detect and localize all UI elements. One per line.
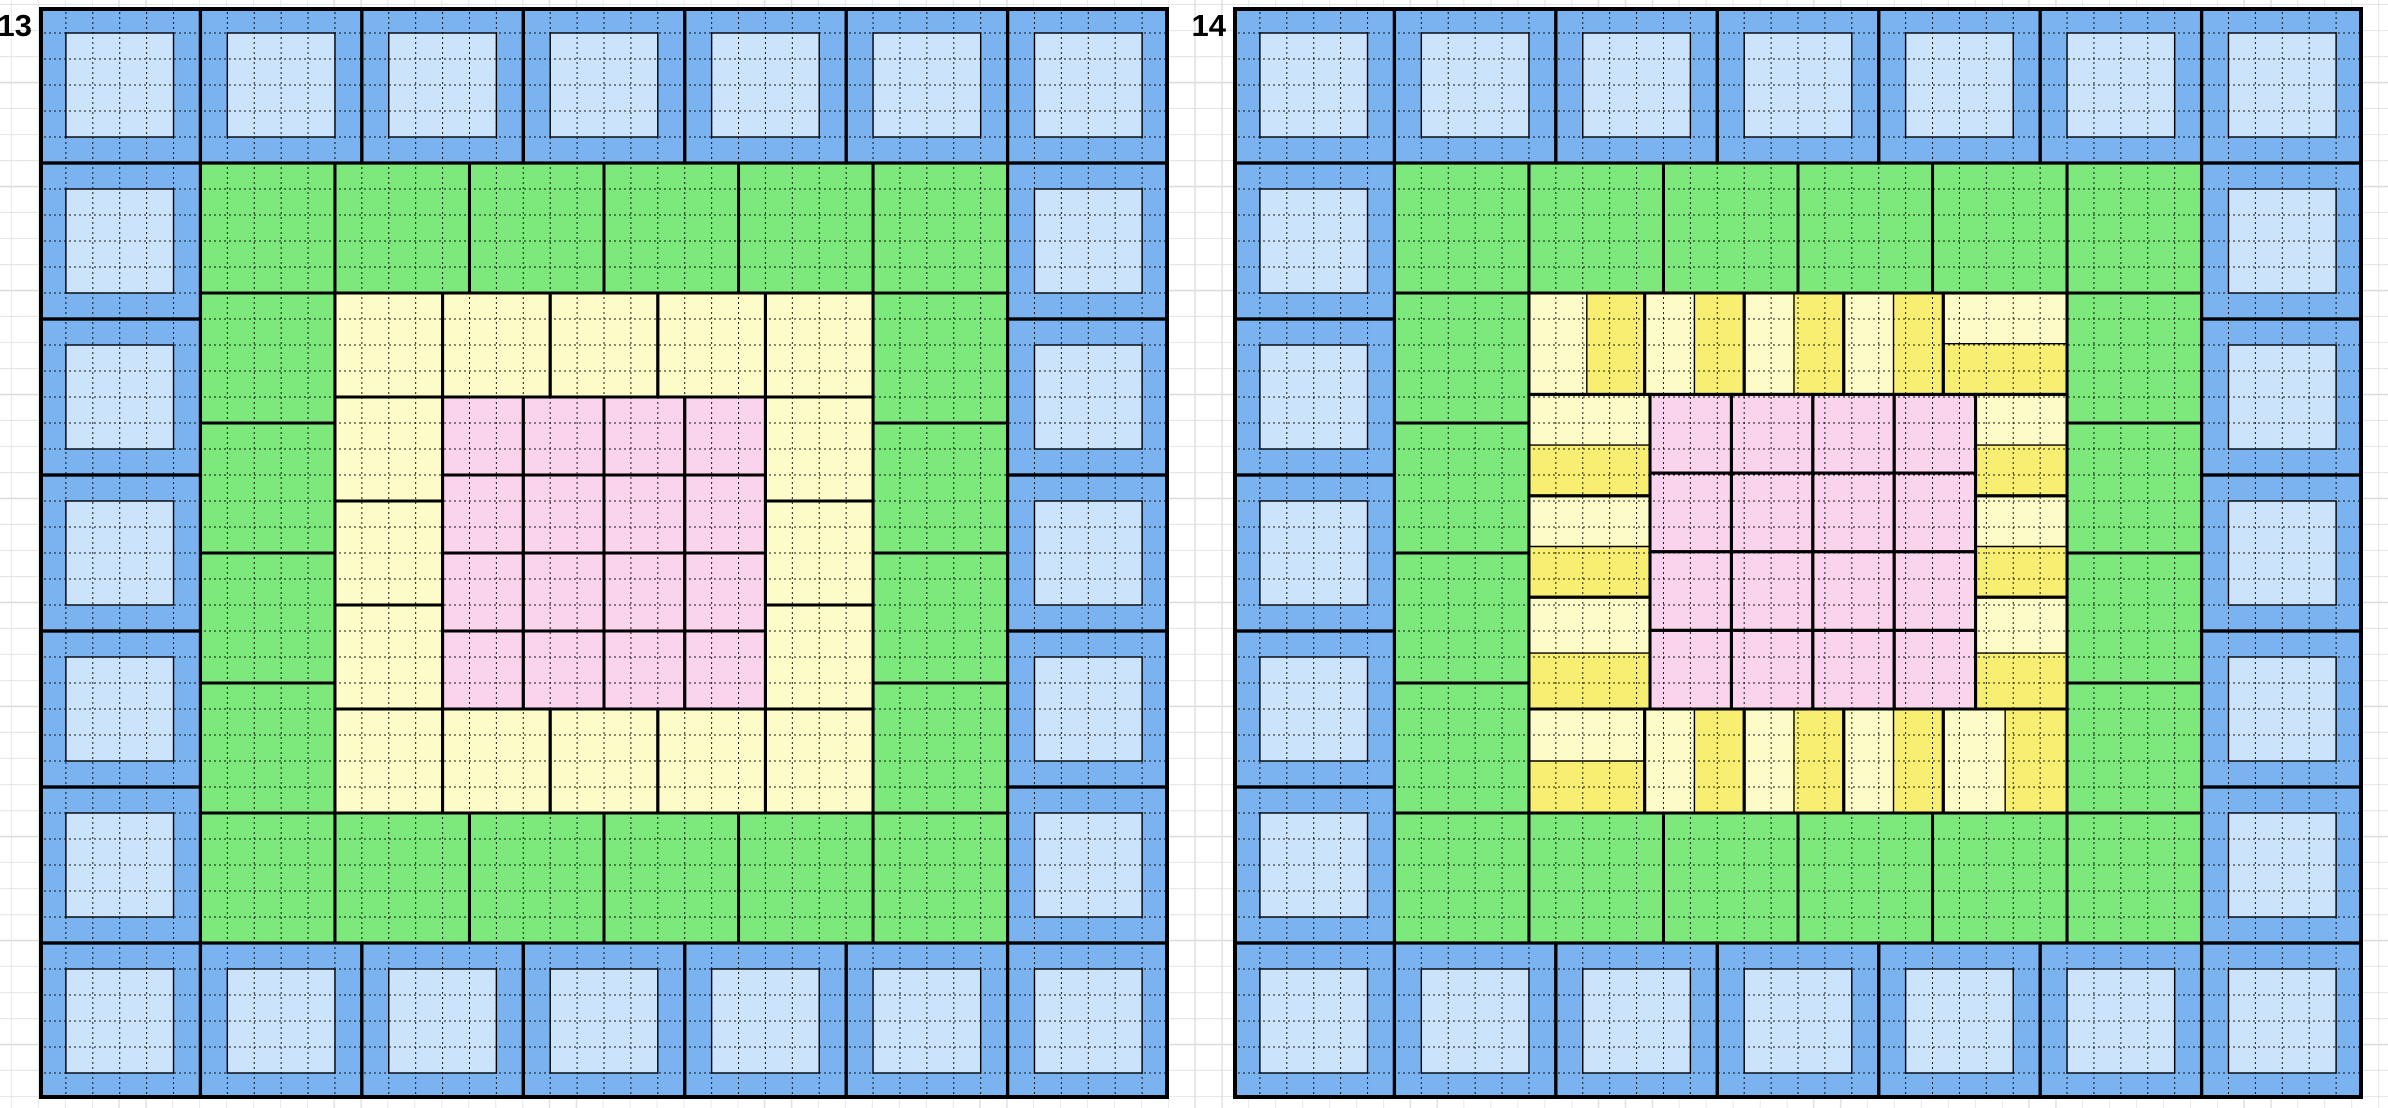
pink-tile: [443, 553, 524, 631]
pink-tile: [1894, 552, 1975, 631]
green-tile: [1798, 813, 1933, 943]
green-tile: [1663, 813, 1798, 943]
yellow-tile-bright-half: [1529, 653, 1650, 709]
yellow-tile-bright-half: [1529, 761, 1645, 813]
green-tile: [873, 163, 1008, 293]
pink-tile: [443, 631, 524, 709]
pink-tile: [1731, 552, 1812, 631]
green-tile: [873, 683, 1008, 813]
pink-tile: [1894, 473, 1975, 552]
pink-tile: [685, 553, 766, 631]
green-tile: [2067, 293, 2202, 423]
yellow-tile-pale-half: [1744, 293, 1794, 394]
yellow-tile-bright-half: [1694, 293, 1744, 394]
green-tile: [200, 683, 335, 813]
pink-tile: [523, 553, 604, 631]
yellow-tile-pale-half: [1529, 709, 1645, 761]
green-tile: [1798, 163, 1933, 293]
figure-13-label: 13: [0, 10, 32, 41]
pink-tile: [604, 397, 685, 475]
figure-14-drawing: [1233, 7, 2363, 1099]
yellow-tile-bright-half: [1943, 344, 2067, 395]
figure-13-drawing: [39, 7, 1169, 1099]
green-tile: [2067, 813, 2202, 943]
pink-tile: [523, 631, 604, 709]
green-tile: [739, 813, 874, 943]
green-tile: [469, 163, 604, 293]
pink-tile: [1731, 394, 1812, 473]
yellow-tile-pale-half: [1976, 597, 2067, 653]
green-tile: [739, 163, 874, 293]
yellow-tile-bright-half: [1976, 653, 2067, 709]
green-tile: [2067, 423, 2202, 553]
pink-tile: [685, 397, 766, 475]
pink-tile: [523, 397, 604, 475]
pink-tile: [443, 397, 524, 475]
green-tile: [335, 813, 470, 943]
pink-tile: [1731, 630, 1812, 709]
green-tile: [1394, 423, 1529, 553]
green-tile: [1394, 683, 1529, 813]
yellow-tile-pale-half: [1529, 394, 1650, 445]
green-tile: [2067, 163, 2202, 293]
green-tile: [1529, 813, 1664, 943]
green-tile: [1663, 163, 1798, 293]
green-tile: [200, 163, 335, 293]
green-tile: [873, 553, 1008, 683]
green-tile: [873, 293, 1008, 423]
yellow-tile-bright-half: [1794, 293, 1844, 394]
green-tile: [604, 163, 739, 293]
green-tile: [873, 423, 1008, 553]
yellow-tile-pale-half: [1529, 496, 1650, 547]
pink-tile: [1731, 473, 1812, 552]
green-tile: [1394, 293, 1529, 423]
figure-14-label: 14: [1192, 10, 1226, 41]
green-tile: [200, 813, 335, 943]
green-tile: [1933, 163, 2068, 293]
yellow-tile-bright-half: [1529, 445, 1650, 496]
pink-tile: [685, 631, 766, 709]
green-tile: [1529, 163, 1664, 293]
green-tile: [469, 813, 604, 943]
green-tile: [1394, 553, 1529, 683]
pink-tile: [685, 475, 766, 553]
green-tile: [200, 293, 335, 423]
green-tile: [2067, 683, 2202, 813]
yellow-tile-bright-half: [1894, 293, 1944, 394]
yellow-tile-pale-half: [1943, 293, 2067, 344]
yellow-tile-pale-half: [1529, 597, 1650, 653]
pink-tile: [604, 631, 685, 709]
green-tile: [1394, 813, 1529, 943]
yellow-tile-pale-half: [1976, 496, 2067, 547]
green-tile: [335, 163, 470, 293]
green-tile: [200, 553, 335, 683]
pink-tile: [1894, 630, 1975, 709]
green-tile: [1933, 813, 2068, 943]
pink-tile: [523, 475, 604, 553]
green-tile: [1394, 163, 1529, 293]
yellow-tile-pale-half: [1645, 293, 1695, 394]
green-tile: [873, 813, 1008, 943]
yellow-tile-bright-half: [1976, 547, 2067, 598]
yellow-tile-pale-half: [1976, 394, 2067, 445]
yellow-tile-bright-half: [1529, 547, 1650, 598]
pink-tile: [604, 475, 685, 553]
yellow-tile-bright-half: [1976, 445, 2067, 496]
yellow-tile-bright-half: [1587, 293, 1645, 394]
green-tile: [200, 423, 335, 553]
spreadsheet-canvas: 13 14: [0, 0, 2388, 1108]
pink-tile: [1894, 394, 1975, 473]
pink-tile: [604, 553, 685, 631]
green-tile: [2067, 553, 2202, 683]
yellow-tile-pale-half: [1529, 293, 1587, 394]
pink-tile: [443, 475, 524, 553]
yellow-tile-pale-half: [1844, 293, 1894, 394]
green-tile: [604, 813, 739, 943]
